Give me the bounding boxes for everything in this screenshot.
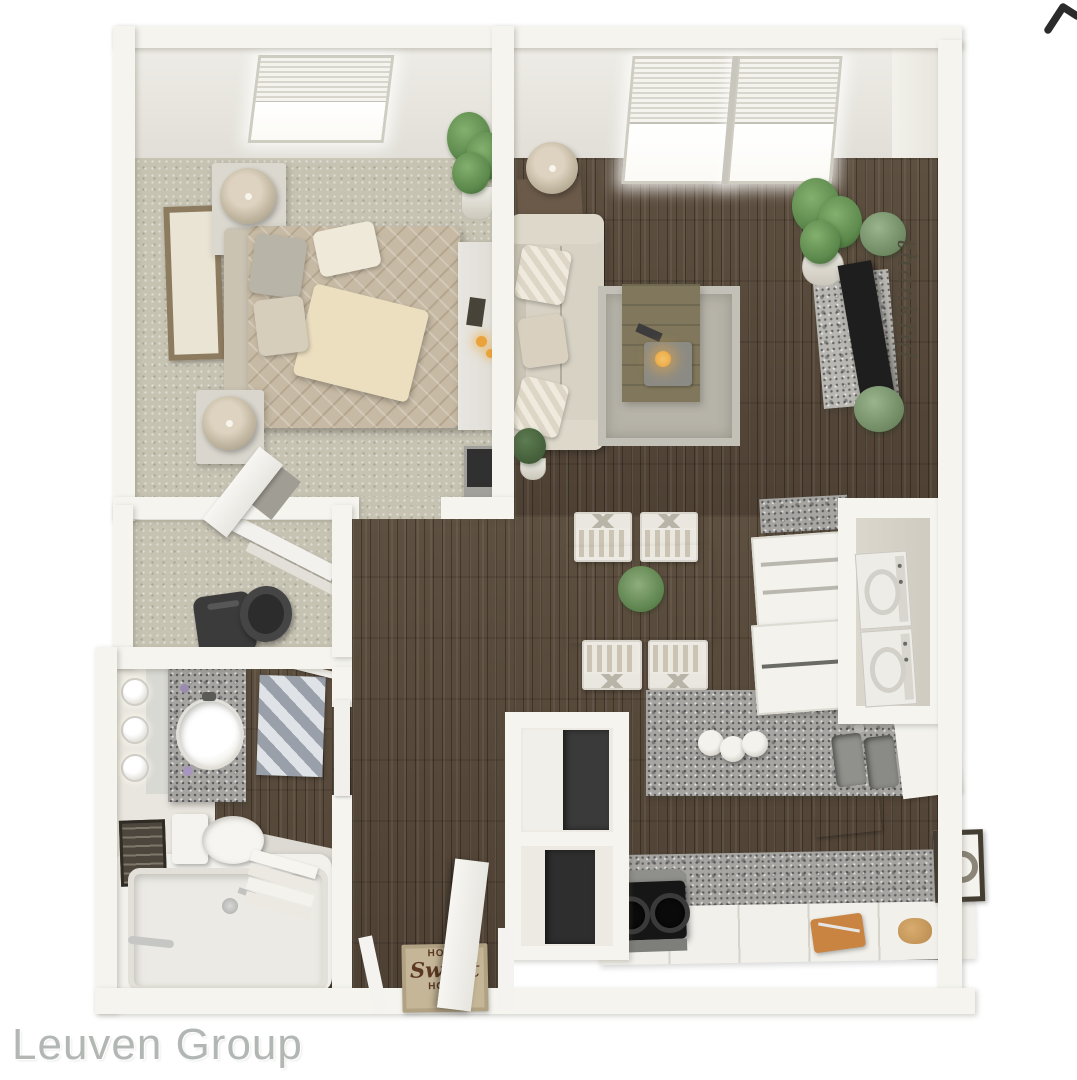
wall-bathroom-left <box>95 647 117 1012</box>
slider-blinds <box>630 59 735 124</box>
lamp-finial <box>549 165 556 172</box>
slider-light <box>730 125 834 181</box>
sofa-side-plant <box>512 428 546 464</box>
bedroom-doorway-threshold <box>359 497 441 519</box>
stacked-washer-dryer <box>852 546 919 710</box>
bedroom-window-blinds <box>256 58 391 103</box>
wall-closet-left <box>113 505 133 667</box>
chair-seat <box>653 645 703 672</box>
dryer-unit <box>855 550 912 629</box>
soap-dish <box>180 684 189 693</box>
floor-plan-image: thankful <box>0 0 1077 1080</box>
cabinet-shelf <box>763 585 843 595</box>
chair-back <box>584 674 640 688</box>
wall-script-decor: thankful <box>884 225 928 375</box>
basket-opening <box>246 592 286 636</box>
chair-seat <box>587 645 637 672</box>
shower-curtain <box>256 675 325 777</box>
wall-closet-bottom <box>113 647 352 669</box>
washer-knob <box>904 658 908 662</box>
dining-chair <box>648 640 708 690</box>
cabinet-shelf <box>762 659 842 669</box>
chair-back <box>650 674 706 688</box>
vanity-sink <box>176 698 244 770</box>
bathroom-door <box>334 700 350 796</box>
bedroom-window <box>248 55 395 143</box>
bedroom-plant-foliage <box>452 152 490 194</box>
slider-panel-left <box>621 56 737 184</box>
cutting-board <box>810 913 866 954</box>
dresser-candle <box>476 336 487 347</box>
slider-blinds <box>735 59 840 124</box>
entry-closet-upper-panel <box>523 730 565 830</box>
tub-faucet <box>222 898 238 914</box>
wall-bedroom-bottom-right <box>441 497 514 519</box>
chevron-right-icon[interactable] <box>1036 0 1077 34</box>
cabinet-shelf <box>761 557 841 567</box>
chair-back <box>642 514 696 528</box>
slider-light <box>625 125 729 181</box>
sliding-glass-door <box>621 56 842 184</box>
wall-closet-right <box>332 505 352 657</box>
dryer-knob <box>898 564 902 568</box>
washer-knob <box>903 642 907 646</box>
wall-left-bedroom <box>113 26 135 521</box>
living-plant-foliage <box>800 220 840 264</box>
wall-bedroom-living-divider <box>492 26 514 515</box>
watermark-text: Leuven Group <box>12 1020 303 1070</box>
bar-stool <box>742 731 768 757</box>
bed-pillow-beige <box>253 295 309 357</box>
sink-basin-right <box>863 735 899 790</box>
entry-closet-lower-door <box>545 850 595 944</box>
slider-panel-right <box>726 56 842 184</box>
vanity-light <box>121 678 149 706</box>
wall-bottom <box>95 988 975 1014</box>
hamper-handle <box>207 600 240 610</box>
entry-door-jamb-right <box>498 928 514 1010</box>
sofa-pillow-top <box>514 244 573 306</box>
sofa-armrest-top <box>510 214 604 244</box>
bedside-lamp-top <box>220 168 276 224</box>
lamp-finial <box>245 193 252 200</box>
wall-greenery-bottom <box>854 386 904 432</box>
dining-chair <box>582 640 642 690</box>
vanity-light <box>121 716 149 744</box>
lamp-finial <box>226 420 233 427</box>
sink-faucet <box>854 724 865 733</box>
living-table-lamp <box>526 142 578 194</box>
chair-back <box>576 514 630 528</box>
wall-right <box>938 40 962 990</box>
hallway-wood-floor <box>352 515 514 990</box>
table-centerpiece <box>618 566 664 612</box>
sink-basin-left <box>831 732 867 787</box>
wall-top <box>113 26 962 48</box>
kitchen-counter-top-strip <box>759 495 849 534</box>
bedside-lamp-bottom <box>202 396 256 450</box>
vanity-light <box>121 754 149 782</box>
candle <box>655 351 671 367</box>
soap-dish <box>183 766 193 776</box>
sofa-pillow-middle <box>517 313 570 369</box>
bread-loaf <box>898 918 932 944</box>
vanity-faucet <box>202 692 216 701</box>
dryer-knob <box>899 580 903 584</box>
wall-bathroom-right-lower <box>332 795 352 992</box>
washer-unit <box>860 628 917 707</box>
entry-closet-upper-door <box>563 730 609 830</box>
bedroom-window-light <box>251 102 386 140</box>
bed-pillow-gray <box>248 233 308 300</box>
kitchen-sink <box>826 720 906 800</box>
